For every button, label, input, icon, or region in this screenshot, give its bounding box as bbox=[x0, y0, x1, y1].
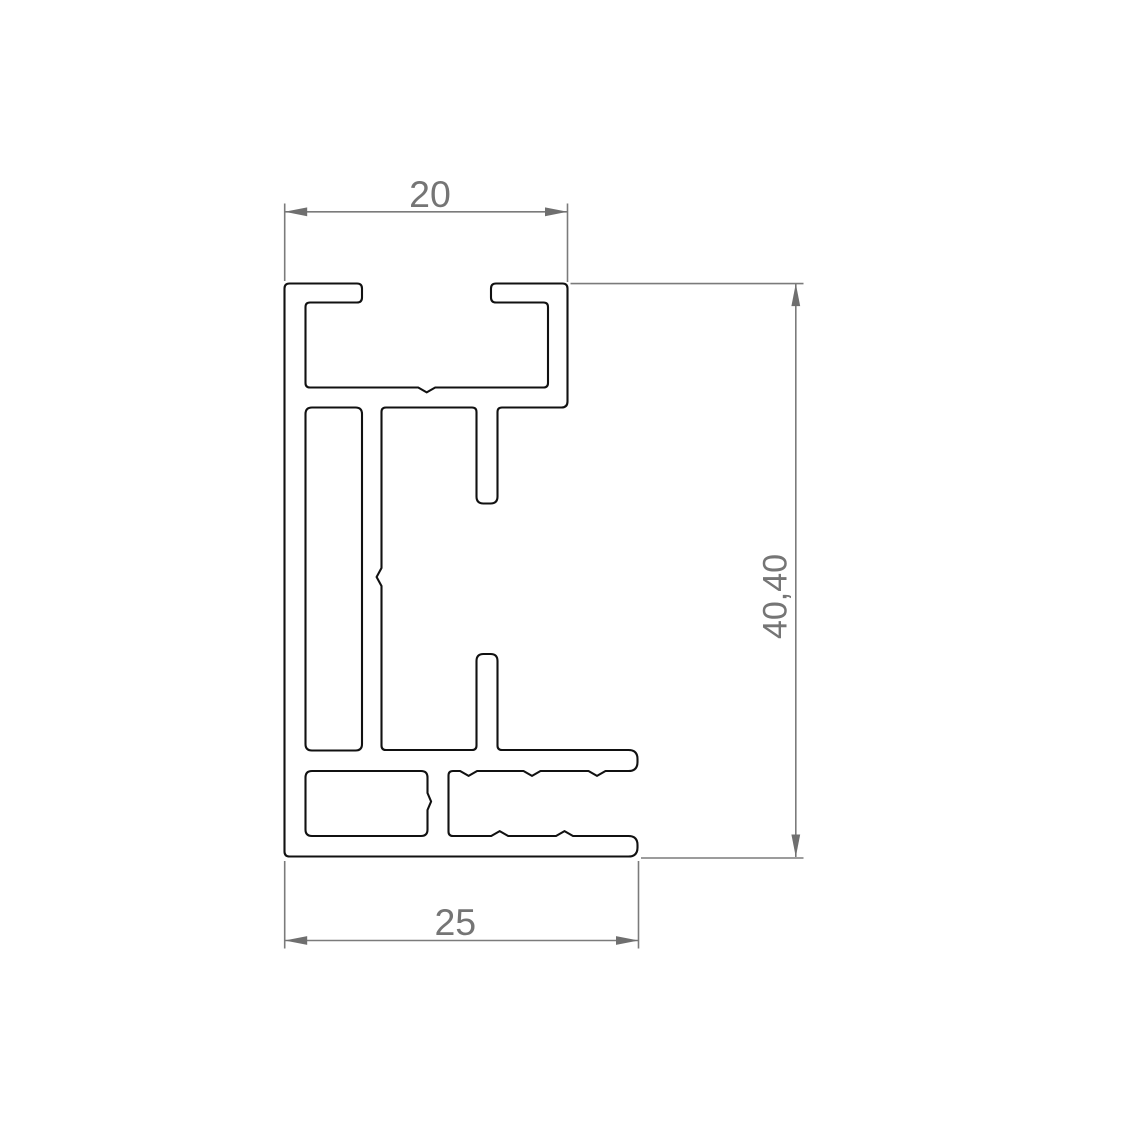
svg-text:20: 20 bbox=[409, 173, 451, 215]
svg-text:40,40: 40,40 bbox=[757, 554, 795, 639]
svg-text:25: 25 bbox=[434, 901, 476, 943]
